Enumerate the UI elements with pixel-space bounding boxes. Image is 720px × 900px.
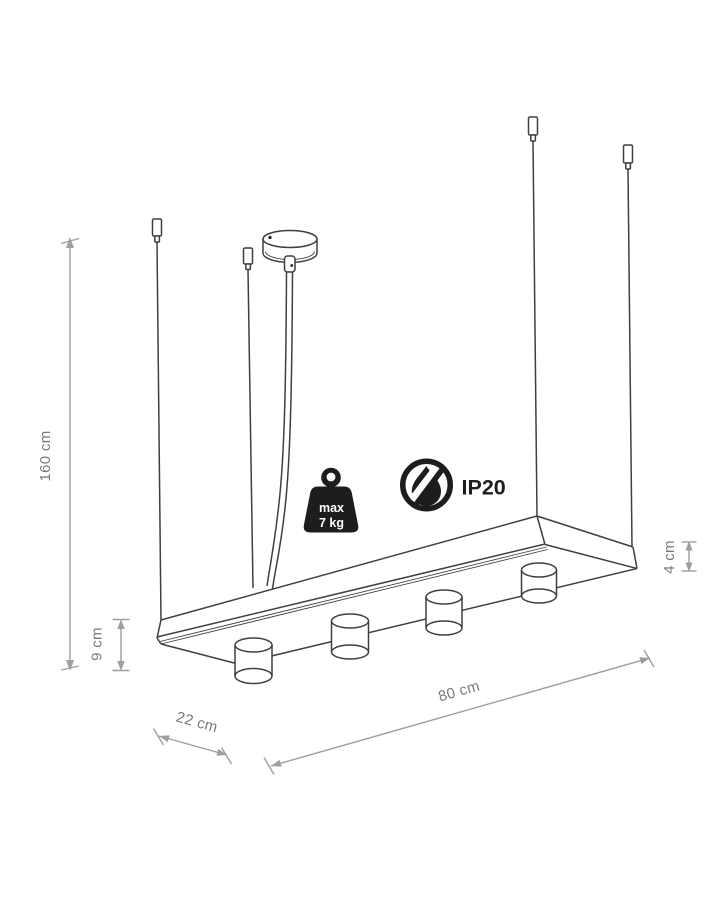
cylinder-bottom	[426, 621, 462, 635]
cord-grip	[285, 256, 296, 272]
wire-connector-neck	[626, 163, 631, 169]
arrow-left-icon	[271, 760, 282, 767]
spotlight-cylinder-1	[235, 638, 272, 684]
cylinder-bottom	[522, 589, 557, 603]
dimension-slash	[222, 748, 232, 765]
dimension-length: 80 cm	[264, 650, 654, 775]
spotlight-cylinder-2	[332, 614, 369, 659]
max-weight-label-1: max	[319, 501, 344, 515]
suspension-wire-1	[153, 219, 162, 620]
ip20-icon: IP20	[403, 458, 506, 513]
arrow-down-icon	[66, 660, 74, 671]
ceiling-canopy	[263, 231, 317, 273]
arrow-up-icon	[117, 619, 124, 629]
wire-connector	[153, 219, 162, 236]
dimension-width: 22 cm	[154, 709, 232, 764]
wire-connector-neck	[155, 236, 160, 242]
wire-connector-neck	[531, 135, 536, 141]
cylinder-top	[235, 638, 272, 652]
cylinder-bottom	[235, 669, 272, 684]
panel-right-edge	[633, 547, 637, 569]
cord-line-left	[267, 271, 287, 586]
suspension-wire-3	[529, 117, 538, 516]
suspension-wire-4	[624, 145, 633, 547]
canopy-screw-dot	[268, 236, 271, 239]
lamp-body	[157, 516, 637, 664]
dimension-panel-thickness: 4 cm	[661, 540, 697, 574]
wire-line	[248, 270, 253, 589]
ip-rating-label: IP20	[462, 476, 506, 500]
dimension-fixture-height: 9 cm	[89, 619, 130, 671]
wire-connector	[244, 248, 253, 264]
power-cord	[267, 271, 293, 589]
wire-line	[533, 141, 537, 516]
height-label: 160 cm	[37, 431, 54, 482]
wire-line	[628, 169, 632, 547]
pendant-lamp-diagram: 160 cm 9 cm 4 cm 80 cm 22 cm	[0, 0, 720, 900]
length-label: 80 cm	[436, 678, 481, 706]
max-weight-label-2: 7 kg	[319, 516, 344, 530]
panel-left-edge	[157, 620, 161, 638]
arrow-down-icon	[117, 661, 124, 671]
cylinder-top	[522, 563, 557, 577]
panel-thickness-label: 4 cm	[661, 540, 678, 574]
weight-handle-hole	[327, 473, 336, 482]
cylinder-bottom	[332, 645, 369, 659]
dimension-line	[159, 736, 227, 755]
width-label: 22 cm	[174, 709, 219, 737]
cord-line-right	[273, 271, 293, 589]
wire-connector	[624, 145, 633, 163]
canopy-top	[263, 231, 317, 248]
wire-connector	[529, 117, 538, 135]
panel-bottom-left-edge	[161, 644, 238, 664]
spotlight-cylinder-4	[522, 563, 557, 603]
cylinder-top	[332, 614, 369, 628]
dimension-line	[271, 658, 650, 766]
diagram-canvas: 160 cm 9 cm 4 cm 80 cm 22 cm	[0, 0, 720, 900]
wire-connector-neck	[246, 264, 251, 270]
cylinder-top	[426, 590, 462, 604]
suspension-wire-2	[244, 248, 254, 588]
fixture-height-label: 9 cm	[89, 627, 106, 661]
wire-line	[157, 242, 161, 620]
panel-right-back-edge	[537, 516, 545, 545]
dimension-height: 160 cm	[37, 237, 79, 671]
spotlight-cylinder-3	[426, 590, 462, 635]
panel-right-bottom-edge	[545, 545, 637, 569]
cord-grip-dot	[290, 264, 293, 267]
max-weight-icon: max 7 kg	[304, 468, 359, 533]
panel-right-top-edge	[537, 516, 633, 547]
